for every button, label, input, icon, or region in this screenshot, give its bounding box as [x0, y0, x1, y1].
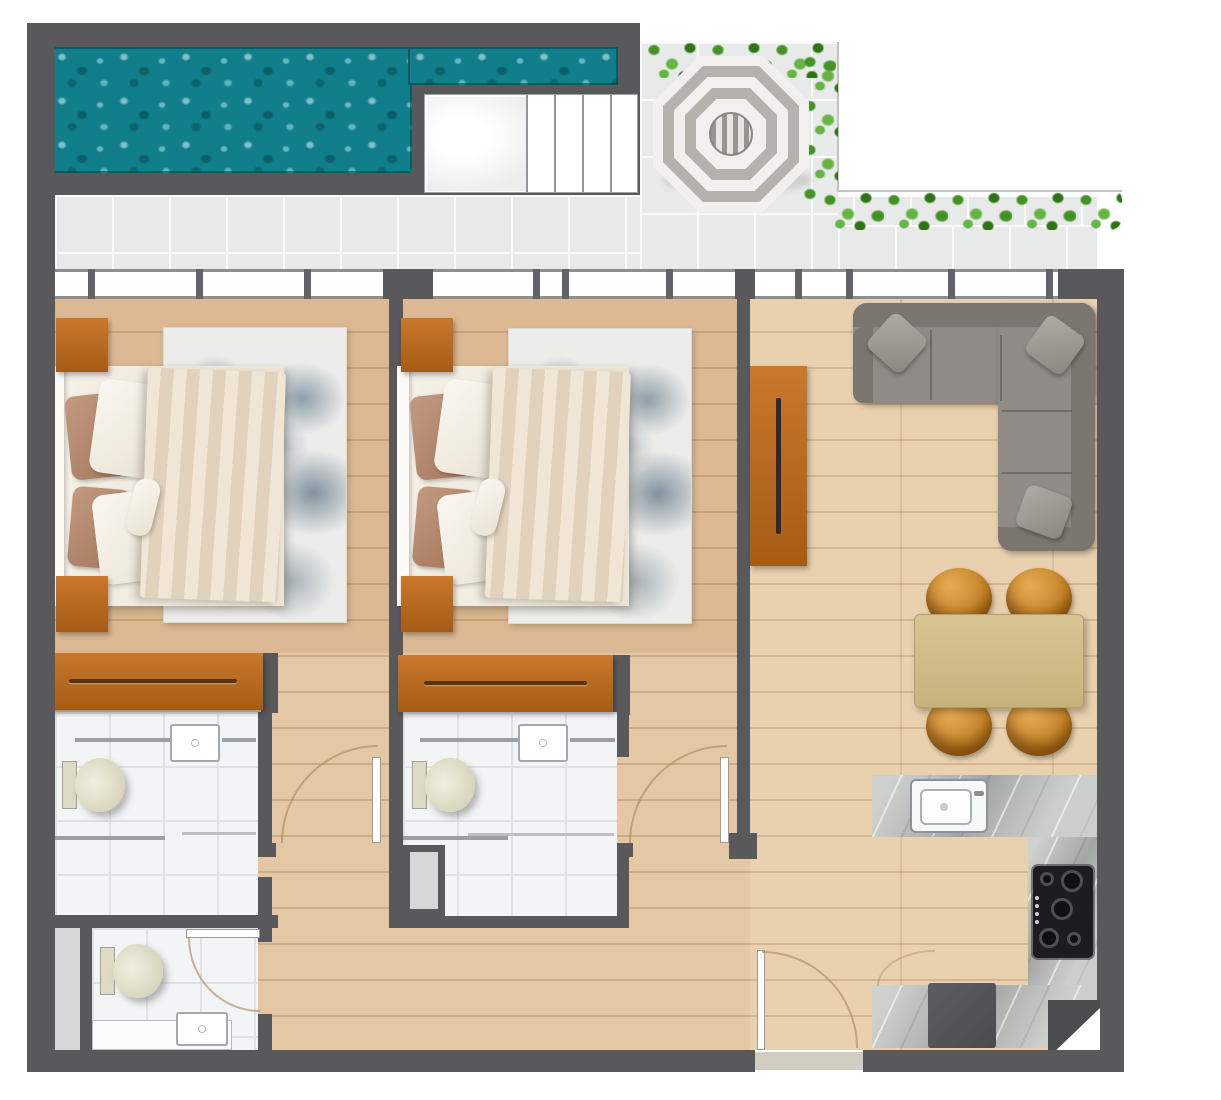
entry-threshold [755, 1052, 863, 1070]
corner-cabinet [1048, 1000, 1100, 1050]
burner [1040, 872, 1054, 886]
bath1-toilet [62, 756, 128, 814]
hedge-long-horizontal [820, 188, 1122, 230]
tv-console [750, 366, 807, 566]
dresser-handle [69, 679, 236, 683]
steps-landing [427, 97, 527, 191]
bedroom-1-bed [52, 366, 284, 606]
bedroom-1-nightstand-bottom [56, 576, 108, 632]
bedroom-2-nightstand-top [401, 318, 453, 372]
corner-cabinet-face [1048, 1000, 1100, 1050]
window-pier-1 [383, 269, 433, 299]
bath3-sink-drain [198, 1025, 206, 1033]
cooktop-knob [1035, 904, 1039, 908]
step-tread [582, 95, 584, 192]
wall-living-divider-cap [729, 833, 757, 859]
wall-bath3-right-stub [258, 928, 272, 942]
toilet-bowl [113, 944, 163, 998]
cooktop-knob [1035, 912, 1039, 916]
burner [1067, 932, 1081, 946]
window-mullion [948, 269, 955, 299]
wall-bath1-bottom [41, 915, 278, 928]
toilet-bowl [75, 758, 125, 812]
tv-screen-line [776, 398, 781, 534]
wall-stub-dresser-1 [261, 653, 278, 713]
utility-shaft [55, 928, 80, 1050]
parasol-center [709, 112, 753, 156]
bedroom-2-dresser [398, 655, 613, 712]
dresser-handle [424, 681, 587, 685]
bath1-glass-line [182, 832, 256, 835]
bath1-partition-line [222, 738, 256, 742]
bath2-partition-line [570, 738, 615, 742]
wall-bath1-right-upper [258, 712, 272, 843]
bath2-shower-line [403, 836, 508, 840]
wall-left-exterior [27, 23, 55, 1072]
pool-water-main [50, 47, 412, 173]
bath2-sink [518, 724, 568, 762]
bath1-shower-line [55, 836, 165, 840]
bath2-sink-drain [539, 739, 547, 747]
bed-headboard [397, 366, 409, 606]
floor-plan [0, 0, 1221, 1100]
bath3-sink [176, 1012, 228, 1046]
burner [1051, 898, 1073, 920]
pool-steps [424, 94, 638, 193]
cooktop-knob [1035, 920, 1039, 924]
bath2-closet [403, 845, 445, 916]
window-mullion [562, 269, 569, 299]
wall-bath2-bottom [389, 916, 629, 928]
pool-water-strip [408, 47, 618, 85]
wall-shaft-divider [80, 928, 92, 1050]
bath1-partition-line [75, 738, 171, 742]
dining-table [914, 614, 1084, 708]
window-band [55, 269, 1097, 299]
bath2-glass-line [468, 833, 614, 836]
bath3-door-leaf [186, 929, 260, 938]
toilet-bowl [425, 758, 475, 812]
bedroom-1-dresser [43, 653, 263, 710]
sofa-seam [1000, 335, 1002, 401]
window-mullion [1046, 269, 1053, 299]
window-mullion [533, 269, 540, 299]
bath3-toilet [100, 942, 166, 1000]
wall-bath2-right-upper [617, 712, 629, 757]
bed-throw-blanket [485, 368, 631, 603]
bath2-partition-line [420, 738, 518, 742]
window-mullion [795, 269, 802, 299]
kitchen-appliance [928, 983, 996, 1048]
bedroom-2-bed [397, 366, 629, 606]
bath2-toilet [412, 756, 478, 814]
step-tread [610, 95, 612, 192]
window-pier-2 [735, 269, 755, 299]
bath1-sink [170, 724, 220, 762]
wall-living-divider [737, 297, 750, 833]
step-tread [526, 95, 528, 192]
gas-cooktop [1033, 866, 1093, 958]
sofa-seam [930, 330, 932, 400]
window-mullion [304, 269, 311, 299]
window-mullion [196, 269, 203, 299]
cooktop-knob [1035, 896, 1039, 900]
wall-bottom-right [863, 1050, 1124, 1072]
burner [1061, 870, 1083, 892]
wall-bath3-right-lower [258, 1014, 272, 1050]
wall-right-exterior [1097, 269, 1124, 1072]
wall-stub-dresser-2 [610, 655, 630, 715]
window-mullion [846, 269, 853, 299]
kitchen-faucet [974, 791, 984, 796]
sofa-seam [1002, 472, 1072, 474]
kitchen-sink [910, 779, 988, 833]
wall-bottom-left [27, 1050, 755, 1072]
terrace-tiles-right [838, 225, 1097, 273]
sofa-seam [1002, 410, 1072, 412]
bedroom-2-nightstand-bottom [401, 576, 453, 632]
step-tread [554, 95, 556, 192]
bedroom-1-nightstand-top [56, 318, 108, 372]
kitchen-sink-drain [940, 803, 948, 811]
window-mullion [666, 269, 673, 299]
window-mullion [88, 269, 95, 299]
wall-bath1-right-lower [258, 877, 272, 915]
bath1-sink-drain [191, 739, 199, 747]
bed-throw-blanket [140, 368, 286, 603]
burner [1039, 928, 1059, 948]
